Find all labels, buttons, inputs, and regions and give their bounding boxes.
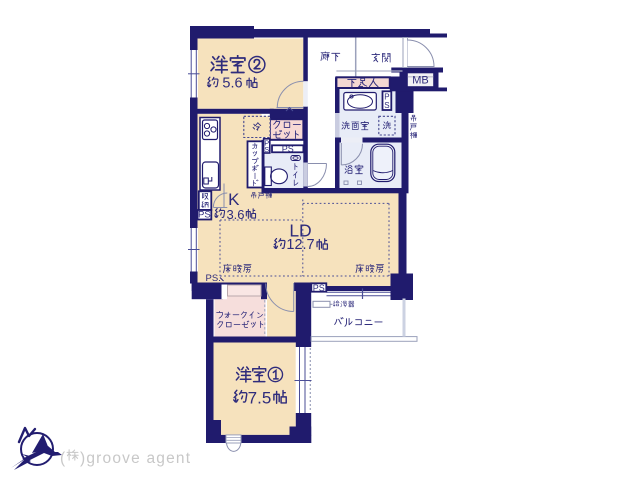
- svg-text:7.5: 7.5: [248, 389, 272, 408]
- svg-text:PS: PS: [313, 283, 325, 293]
- svg-text:S: S: [264, 145, 269, 154]
- svg-text:PS: PS: [198, 210, 211, 221]
- svg-text:3.6: 3.6: [226, 207, 244, 222]
- svg-text:12.7: 12.7: [286, 237, 314, 253]
- svg-text:5.6: 5.6: [222, 75, 242, 91]
- svg-text:MB: MB: [412, 74, 429, 86]
- svg-text:PS: PS: [282, 144, 294, 154]
- svg-text:)groove agent: )groove agent: [80, 450, 191, 467]
- svg-text:S: S: [384, 101, 389, 110]
- svg-text:PS.: PS.: [206, 273, 221, 284]
- svg-text:(: (: [60, 450, 66, 467]
